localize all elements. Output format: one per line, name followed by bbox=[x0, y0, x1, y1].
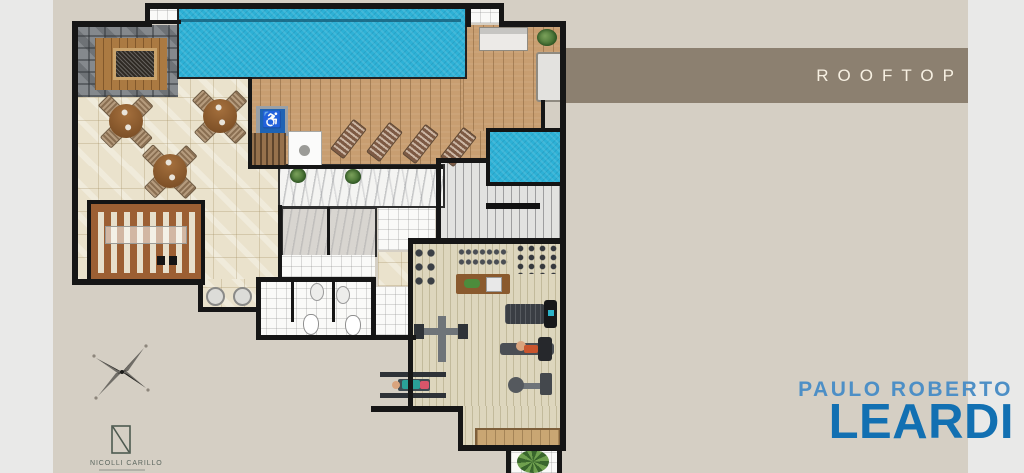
wall-segment bbox=[541, 100, 545, 130]
pedestal-sink-icon bbox=[233, 287, 252, 306]
person-lifting bbox=[392, 381, 400, 389]
stair-handrail bbox=[486, 203, 540, 209]
deck-plant-icon bbox=[537, 29, 557, 46]
wall-segment bbox=[371, 277, 376, 339]
wall-segment bbox=[408, 238, 413, 412]
wall-segment bbox=[332, 280, 335, 322]
wall-segment bbox=[291, 280, 294, 322]
toilet-icon bbox=[303, 314, 319, 335]
wall-segment bbox=[248, 77, 252, 169]
rowing-machine bbox=[500, 335, 554, 363]
deck-alcove bbox=[470, 7, 500, 23]
accessible-lift-plate: ♿ bbox=[256, 106, 288, 136]
wall-segment bbox=[371, 406, 463, 412]
wall-segment bbox=[145, 3, 504, 9]
wheelchair-icon: ♿ bbox=[260, 109, 285, 133]
treadmill bbox=[505, 300, 557, 328]
wall-segment bbox=[72, 279, 204, 285]
outdoor-sofa bbox=[479, 27, 528, 51]
wall-segment bbox=[436, 158, 490, 163]
brand-name: LEARDI bbox=[829, 398, 1014, 447]
compass-icon bbox=[86, 338, 158, 406]
wall-segment bbox=[72, 21, 78, 284]
n-square-monogram-icon bbox=[110, 425, 134, 455]
elevator-1 bbox=[281, 207, 330, 257]
wall-segment bbox=[198, 307, 261, 312]
wall-segment bbox=[256, 277, 261, 339]
counter-plant-icon bbox=[290, 168, 306, 183]
wall-segment bbox=[560, 21, 566, 451]
deck-ramp-steps bbox=[248, 133, 286, 165]
gym-access-corridor bbox=[375, 287, 408, 335]
exercise-mat bbox=[456, 274, 510, 294]
stall-sink-icon bbox=[310, 283, 324, 301]
wall-segment bbox=[256, 335, 376, 340]
wall-notch bbox=[545, 100, 561, 128]
fire-pit-table bbox=[113, 48, 157, 80]
architect-tagline-faint bbox=[99, 469, 145, 471]
architect-name: NICOLLI CARILLO bbox=[90, 460, 154, 467]
wall-segment bbox=[506, 448, 511, 473]
wall-segment bbox=[248, 165, 443, 169]
wall-segment bbox=[557, 451, 562, 473]
grill-icon bbox=[169, 256, 177, 265]
wall-segment bbox=[327, 207, 330, 255]
palm-plant-icon bbox=[517, 450, 549, 473]
drain-icon bbox=[299, 145, 310, 156]
toilet-icon bbox=[345, 315, 361, 336]
wall-segment bbox=[466, 3, 471, 27]
architect-logo: NICOLLI CARILLO bbox=[90, 425, 154, 471]
wall-segment bbox=[256, 277, 376, 282]
elliptical-bike bbox=[506, 371, 554, 399]
wall-segment bbox=[499, 21, 566, 27]
pool-edge-line bbox=[179, 19, 461, 22]
cable-station bbox=[414, 316, 468, 362]
spa-pool-frame bbox=[486, 128, 565, 186]
core-corridor bbox=[281, 255, 375, 277]
wall-segment bbox=[436, 238, 566, 244]
kettlebell-rack bbox=[413, 246, 437, 288]
balance-board bbox=[486, 277, 502, 292]
person-exercising bbox=[464, 279, 480, 288]
wall-segment bbox=[458, 445, 566, 451]
dumbbell-rack bbox=[515, 244, 561, 274]
stall-sink-icon bbox=[336, 286, 350, 304]
pedestal-sink-icon bbox=[206, 287, 225, 306]
wall-segment bbox=[436, 158, 441, 244]
grill-counter bbox=[105, 226, 187, 244]
shower-fountain-base bbox=[288, 131, 322, 166]
wall-segment bbox=[72, 21, 152, 27]
spa-pool bbox=[490, 132, 565, 182]
counter-plant-icon bbox=[345, 169, 361, 184]
wall-segment bbox=[278, 205, 282, 281]
dumbbell-rack bbox=[458, 247, 508, 267]
pergola-grill-area bbox=[87, 200, 205, 285]
grill-icon bbox=[157, 256, 165, 265]
elevator-2 bbox=[328, 207, 377, 257]
presentation-slide: ROOFTOP bbox=[0, 0, 1024, 473]
bench-press bbox=[380, 370, 446, 400]
tile-patch bbox=[378, 252, 408, 286]
